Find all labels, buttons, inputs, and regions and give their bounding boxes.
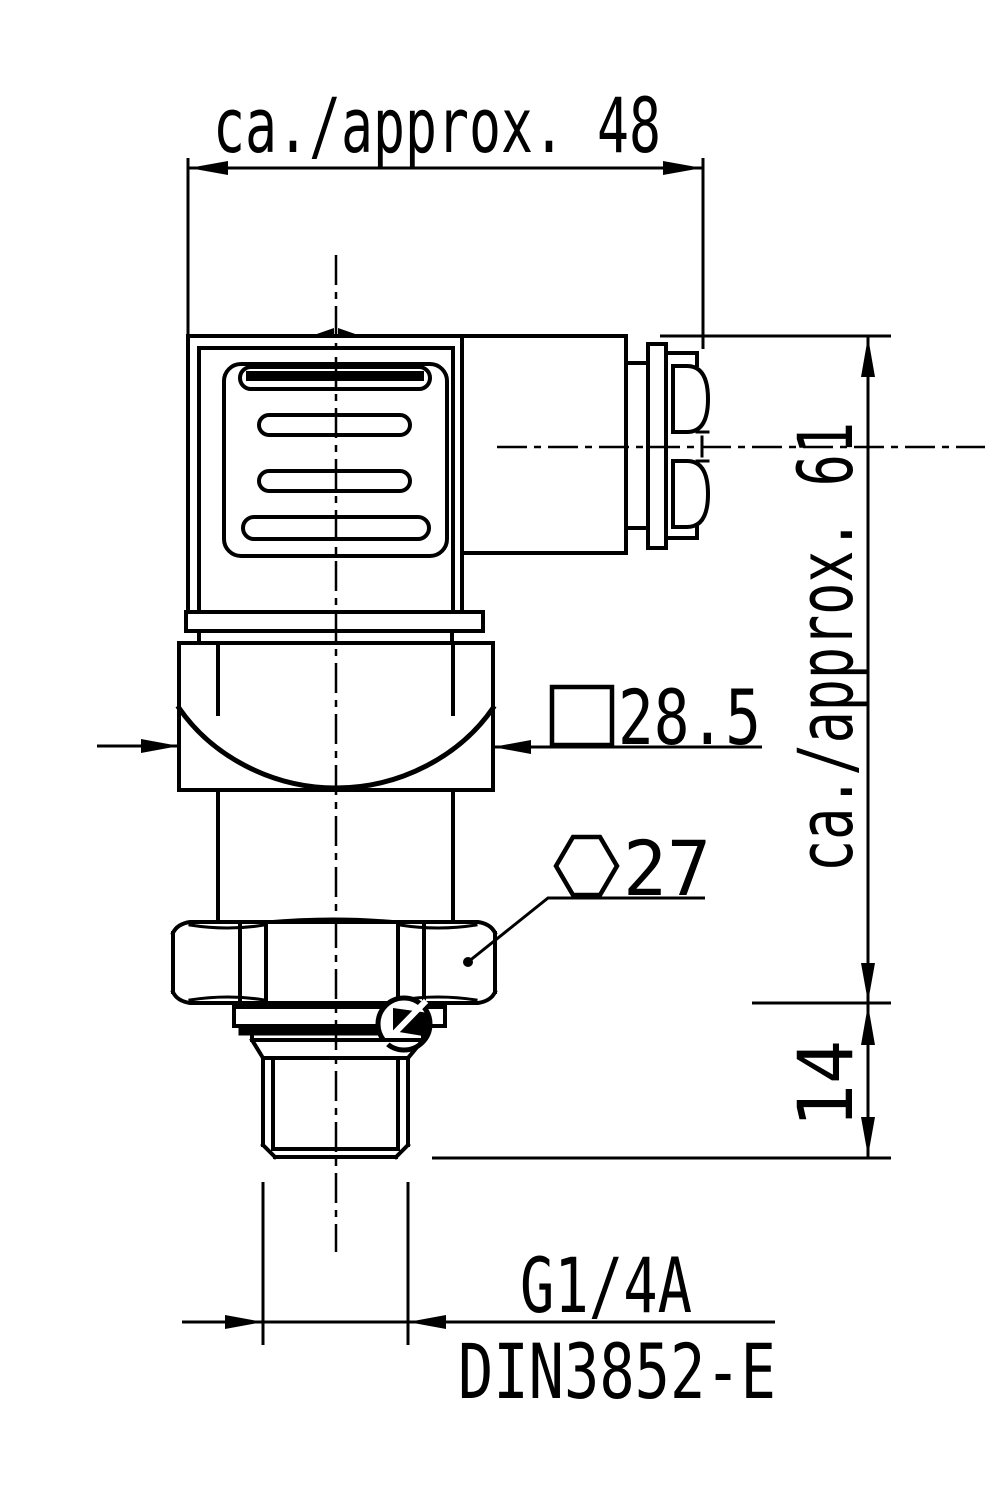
thread-type-label: G1/4A xyxy=(520,1241,692,1330)
dimension-square-width: 28.5 xyxy=(97,673,762,762)
pressure-sensor-dimension-drawing: ca./approx. 48 ca./approx. 61 14 28.5 27… xyxy=(0,0,998,1500)
dimension-thread-spec: G1/4A DIN3852-E xyxy=(182,1182,776,1416)
sealing-washer xyxy=(234,998,445,1050)
label-hex-size: 27 xyxy=(463,824,711,967)
hex-flat-edges xyxy=(240,924,424,1001)
connector-housing xyxy=(186,328,626,643)
hex-27-label: 27 xyxy=(623,824,711,913)
dimension-thread-length: 14 xyxy=(781,1005,875,1156)
dim-61-label: ca./approx. 61 xyxy=(781,422,870,872)
threaded-stub xyxy=(252,1035,423,1157)
hex-outline xyxy=(173,922,495,1003)
dim-14-label: 14 xyxy=(781,1040,870,1128)
hex-crown-arcs xyxy=(190,919,476,1006)
dim-285-label: 28.5 xyxy=(618,673,761,762)
vent-slot-3 xyxy=(259,471,410,491)
dim-48-lines xyxy=(188,158,703,349)
dimension-top-width: ca./approx. 48 xyxy=(188,81,703,349)
vent-slot-2 xyxy=(259,415,410,435)
square-symbol-icon xyxy=(552,687,612,745)
hex-nut xyxy=(173,919,495,1006)
hexagon-symbol-icon xyxy=(556,837,617,895)
thread-standard-label: DIN3852-E xyxy=(458,1327,776,1416)
hex-27-leader-dot xyxy=(463,957,473,967)
technical-drawing-page: ca./approx. 48 ca./approx. 61 14 28.5 27… xyxy=(0,0,998,1500)
dim-48-label: ca./approx. 48 xyxy=(213,81,661,170)
